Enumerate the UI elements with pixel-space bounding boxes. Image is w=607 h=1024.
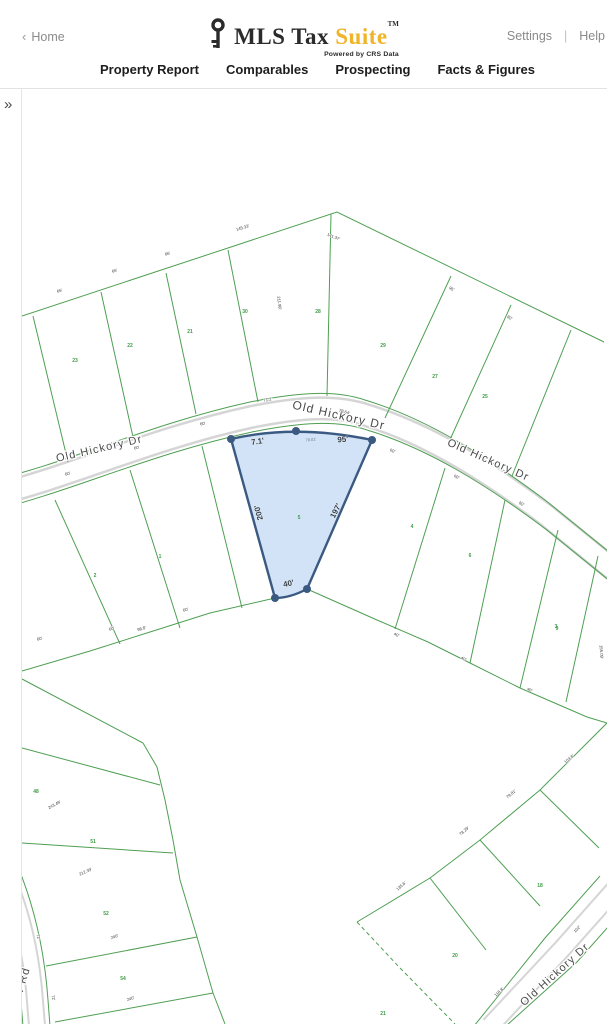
sidebar-expand-icon[interactable]: »: [4, 97, 12, 112]
parcel-number: 23: [72, 358, 78, 364]
parcel-number: 20: [452, 953, 458, 959]
parcel-number: 21: [187, 329, 193, 335]
parcel-number: 51: [90, 839, 96, 845]
dim-label: 60': [182, 606, 189, 612]
dim-label: 118.8': [493, 986, 505, 997]
top-right-links: Settings|Help: [507, 29, 605, 43]
subject-vertex-dot: [227, 435, 235, 443]
nav-tab-prospecting[interactable]: Prospecting: [335, 62, 410, 77]
logo-title-accent: Suite: [335, 24, 387, 49]
parcel-number: 30: [242, 309, 248, 315]
dim-label: 60': [36, 635, 43, 641]
dim-label: 79.81': [505, 788, 517, 799]
parcel-number: 27: [432, 374, 438, 380]
subject-parcel-number: 5: [298, 515, 301, 521]
dim-label: 60': [389, 447, 396, 454]
parcel-number: 22: [127, 343, 133, 349]
dim-label: 60': [200, 421, 207, 427]
dim-label: 135.6': [395, 880, 407, 891]
help-link[interactable]: Help: [579, 29, 605, 43]
parcel-number: 25: [482, 394, 488, 400]
subject-parcel[interactable]: [227, 427, 376, 602]
subject-vertex-dot: [292, 427, 300, 435]
parcel-number: 21: [380, 1011, 386, 1017]
dim-label: 40': [393, 631, 400, 638]
parcel-number: 18: [537, 883, 543, 889]
parcel-number: 28: [315, 309, 321, 315]
settings-link[interactable]: Settings: [507, 29, 552, 43]
dim-label: 240': [126, 995, 135, 1002]
dimension-labels: 145.33'141.37'66'66'66'211.98'95'80'71.2…: [36, 223, 605, 1002]
logo-title: MLS Tax SuiteTM: [234, 21, 399, 48]
dim-label: 212.39': [78, 866, 93, 876]
top-bar: ‹Home MLS Tax SuiteTM Powered by CRS Dat…: [0, 0, 607, 62]
parcel-number: 48: [33, 789, 39, 795]
main-nav: Property ReportComparablesProspectingFac…: [0, 62, 607, 89]
subject-dim-label: 78.01': [305, 437, 316, 443]
parcel-number: 2: [94, 573, 97, 579]
parcel-boundaries: [22, 212, 607, 1024]
subject-vertex-dot: [368, 436, 376, 444]
dim-label: 145.33': [235, 223, 250, 232]
parcel-map[interactable]: Old Hickory DrOld Hickory DrOld Hickory …: [22, 89, 607, 1024]
dim-label: 72': [36, 934, 42, 940]
parcel-number: 6: [469, 553, 472, 559]
map-area: »: [0, 89, 607, 1024]
parcel-number: 4: [411, 524, 414, 530]
link-divider: |: [564, 29, 567, 43]
dim-label: 66': [56, 287, 63, 294]
dim-label: 141.37': [326, 232, 341, 242]
parcel-number: 52: [103, 911, 109, 917]
parcel-number: 54: [120, 976, 126, 982]
nav-tab-comparables[interactable]: Comparables: [226, 62, 308, 77]
dim-label: 78.29': [458, 825, 470, 836]
dim-label: 95': [448, 285, 455, 292]
nav-tab-property-report[interactable]: Property Report: [100, 62, 199, 77]
logo-tagline: Powered by CRS Data: [208, 52, 399, 59]
subject-vertex-dot: [271, 594, 279, 602]
dim-label: 40': [526, 686, 533, 693]
dim-label: 240': [110, 933, 119, 941]
dim-label: 211.98': [276, 296, 282, 310]
dim-label: 66': [164, 250, 171, 256]
subject-vertex-dot: [303, 585, 311, 593]
dim-label: 243.49': [47, 799, 62, 810]
dim-label: 66': [111, 267, 118, 274]
dim-label: 80': [506, 314, 513, 321]
parcel-number: 29: [380, 343, 386, 349]
dim-label: 60': [453, 473, 460, 480]
dim-label: 72': [50, 994, 56, 1001]
parcel-number: 9: [556, 626, 559, 632]
dim-label: 103.8': [563, 753, 575, 764]
dim-label: 155.09': [599, 645, 605, 659]
subject-parcel-shape[interactable]: [231, 432, 372, 598]
parcel-number: 1: [159, 554, 162, 560]
trademark-symbol: TM: [388, 20, 399, 28]
subject-dim-label: 95': [337, 435, 349, 445]
key-icon: [208, 18, 228, 50]
nav-tab-facts-figures[interactable]: Facts & Figures: [437, 62, 535, 77]
dim-label: 98.8': [137, 625, 147, 632]
